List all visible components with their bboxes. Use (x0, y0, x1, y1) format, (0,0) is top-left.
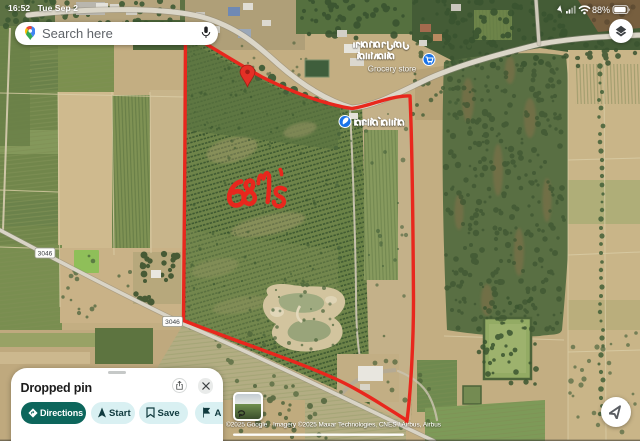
svg-text:©2025 Google · Imagery ©2025 M: ©2025 Google · Imagery ©2025 Maxar Techn… (226, 421, 441, 429)
svg-text:88%: 88% (592, 4, 610, 14)
svg-text:3046: 3046 (38, 251, 53, 258)
svg-text:Grocery store: Grocery store (368, 65, 417, 74)
svg-text:3046: 3046 (165, 319, 180, 326)
